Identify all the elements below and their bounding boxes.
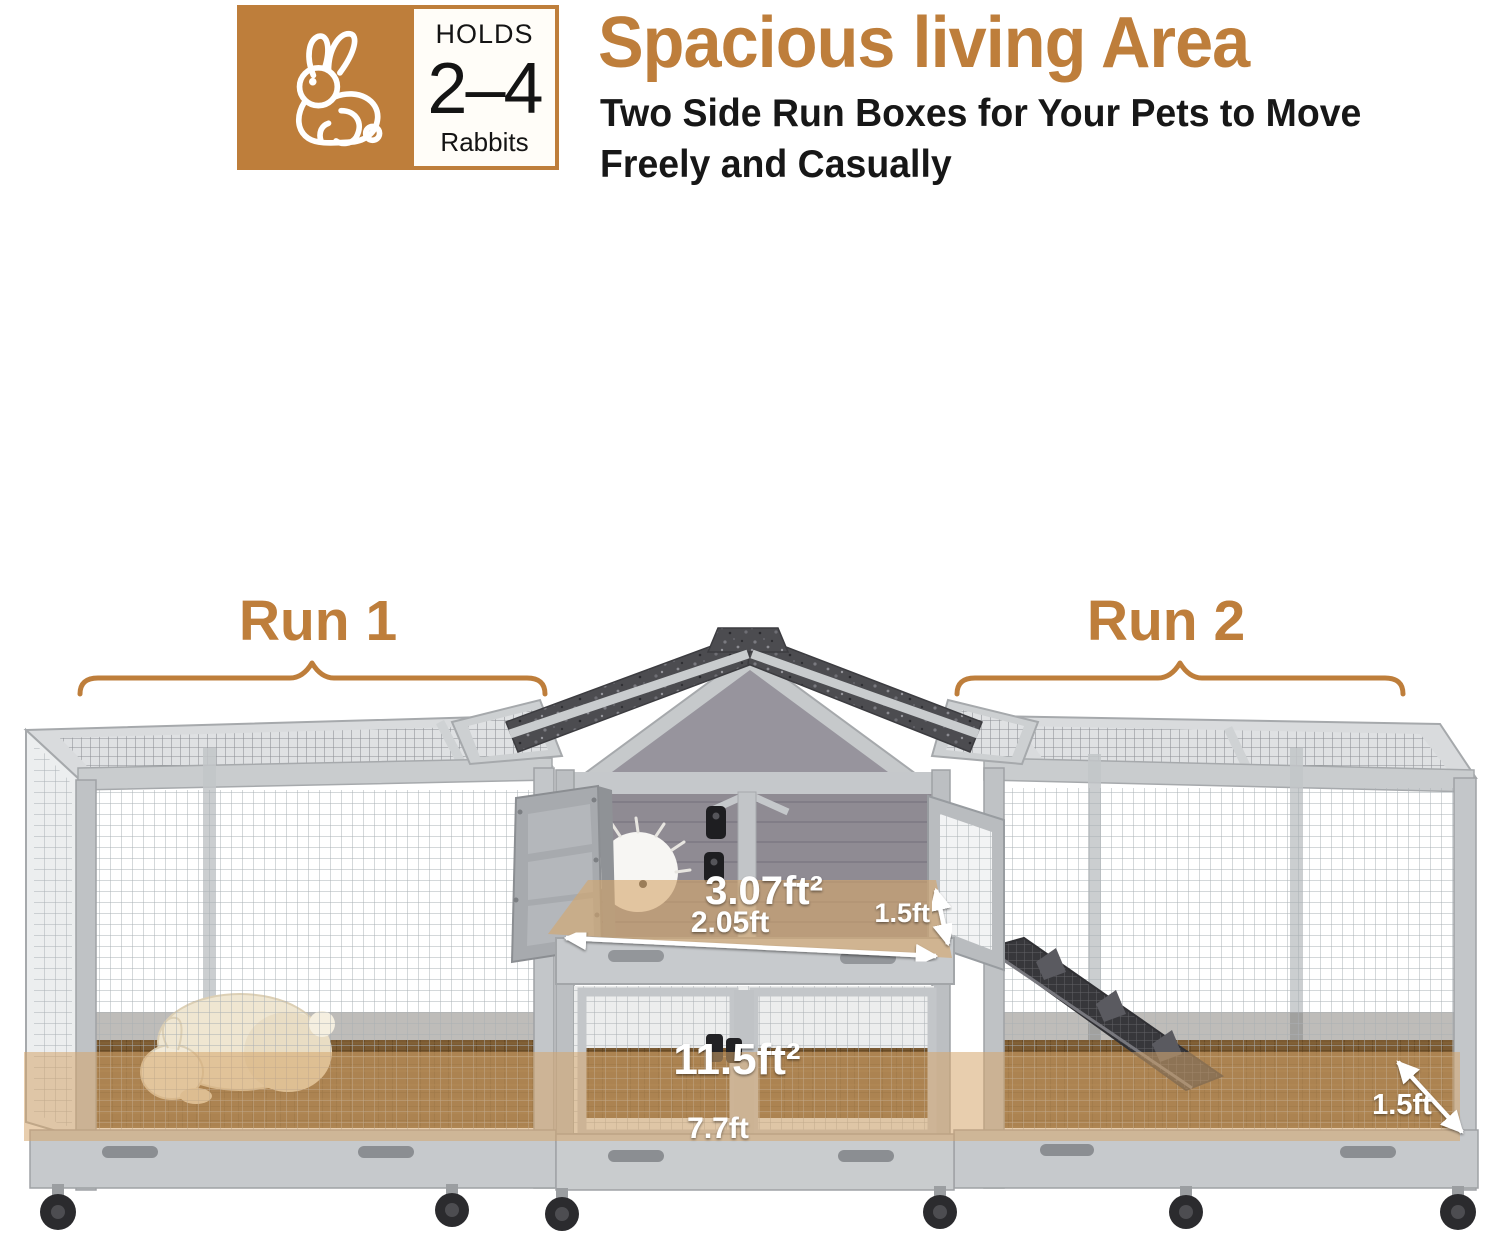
run1-brace: [80, 663, 545, 694]
caster-wheel: [1440, 1186, 1476, 1230]
run2-brace: [957, 663, 1403, 694]
house-top-beam: [574, 772, 934, 794]
caster-wheel: [1169, 1186, 1203, 1229]
run-depth-label: 1.5ft: [1372, 1089, 1432, 1121]
base-handle-slot: [358, 1146, 414, 1158]
casters: [40, 1184, 1476, 1231]
caster-wheel: [545, 1188, 579, 1231]
total-area-label: 11.5ft²: [673, 1035, 800, 1084]
base-handle-slot: [1340, 1146, 1396, 1158]
hutch-width-label: 2.05ft: [691, 906, 769, 939]
caster-wheel: [923, 1186, 957, 1229]
base-handle-slot: [608, 1150, 664, 1162]
roof-ridge-cap: [708, 628, 788, 652]
caster-wheel: [435, 1184, 469, 1227]
drawer-handle: [608, 950, 664, 962]
hutch-illustration: 3.07ft² 1.5ft 2.05ft 11.5ft² 7.7ft 1.5ft…: [0, 0, 1500, 1234]
base-handle-slot: [838, 1150, 894, 1162]
hutch-depth-label: 1.5ft: [874, 898, 930, 928]
total-width-label: 7.7ft: [687, 1112, 749, 1145]
run2-label: Run 2: [1087, 589, 1245, 653]
base-handle-slot: [102, 1146, 158, 1158]
run1-label: Run 1: [239, 589, 397, 653]
caster-wheel: [40, 1184, 76, 1230]
product-infographic: HOLDS 2–4 Rabbits Spacious living Area T…: [0, 0, 1500, 1234]
